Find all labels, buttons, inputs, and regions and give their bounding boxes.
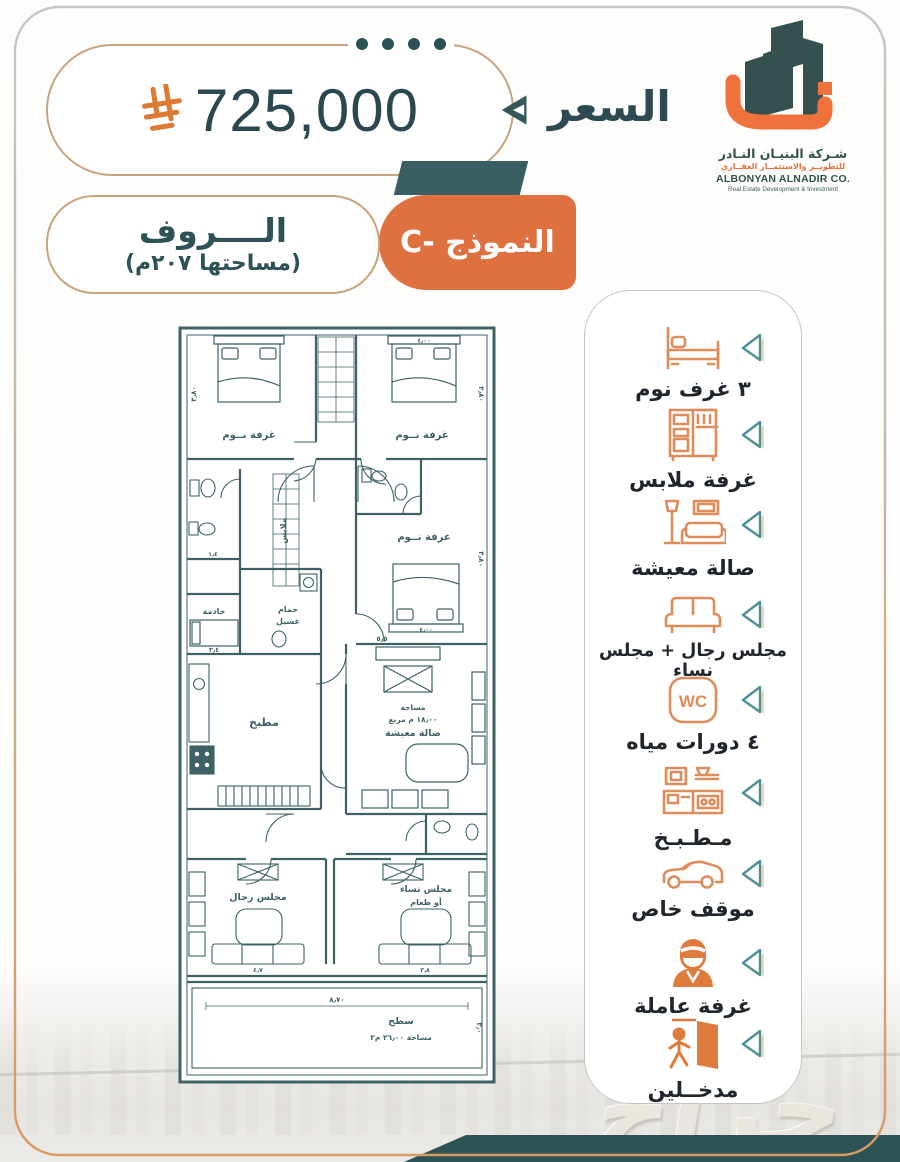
svg-text:٣٫٨٠: ٣٫٨٠ [477,551,485,566]
feature-label: مدخــلين [585,1078,801,1102]
maid-icon [665,937,721,989]
company-logo: شـركة البنيـان النـادر للتطويــر والاستث… [693,20,873,210]
svg-text:مساحة ٢٦٫٠٠ م٢: مساحة ٢٦٫٠٠ م٢ [370,1033,432,1042]
flyer-page: حراج 725,000 السعر [0,0,900,1162]
svg-text:٤٫٧: ٤٫٧ [253,967,263,974]
svg-text:١٨٫٠٠ م مربع: ١٨٫٠٠ م مربع [388,715,437,724]
arrow-left-icon [735,509,769,541]
arrow-left-icon [735,332,769,364]
bottom-accent-bar [388,1135,900,1162]
living-room-icon [660,499,726,551]
floorplan-drawing: غرفة نــوم غرفة نــوم غرفة نــوم ملابس ح… [176,324,498,1086]
svg-text:صالة معيشة: صالة معيشة [385,728,441,739]
logo-company-name-en: ALBONYAN ALNADIR CO. [693,173,873,185]
feature-label: ٤ دورات مياه [585,730,801,754]
price-label: السعر [548,82,671,131]
wardrobe-icon [664,407,722,463]
svg-text:أو طعام: أو طعام [410,897,442,907]
svg-text:مطبخ: مطبخ [249,716,279,729]
svg-text:١٫٤: ١٫٤ [208,551,218,558]
feature-label: مـطـبـخ [585,826,801,850]
feature-item-entrances: مدخــلين [585,1015,801,1102]
saudi-riyal-symbol [141,84,185,136]
svg-text:٣٫٨٠: ٣٫٨٠ [190,386,198,401]
arrow-left-icon [735,1028,769,1060]
arrow-left-icon [735,599,769,631]
svg-text:سطح: سطح [388,1016,413,1027]
arrow-left-icon [735,419,769,451]
feature-label: غرفة ملابس [585,468,801,492]
car-icon [660,856,726,892]
decorative-dots [348,38,454,50]
unit-area-note: (مساحتها ٢٠٧م) [125,251,301,276]
svg-text:حمام: حمام [278,605,298,614]
svg-text:غسيل: غسيل [276,617,300,626]
arrow-left-icon [735,947,769,979]
price-arrow-icon [496,92,530,128]
building-logo-icon [719,20,847,140]
svg-text:خادمة: خادمة [203,607,226,616]
logo-tagline-ar: للتطويــر والاستثمــار العقــاري [693,162,873,171]
arrow-left-icon [735,684,769,716]
wc-icon-text: WC [679,692,707,711]
feature-item-bedrooms: ٣ غرف نوم [585,324,801,401]
feature-item-living-hall: صالة معيشة [585,499,801,580]
price-pill: 725,000 [46,44,514,176]
svg-text:٣٫٨: ٣٫٨ [420,967,430,974]
svg-text:٨٫٧٠: ٨٫٧٠ [329,996,344,1004]
svg-text:غرفة نــوم: غرفة نــوم [222,430,275,441]
svg-text:مساحة: مساحة [400,703,425,712]
feature-label: صالة معيشة [585,556,801,580]
feature-item-kitchen: مـطـبـخ [585,765,801,850]
svg-text:٣٫٨٠: ٣٫٨٠ [477,386,485,401]
feature-label: ٣ غرف نوم [585,377,801,401]
feature-item-bathrooms: WC ٤ دورات مياه [585,675,801,754]
feature-label: موقف خاص [585,897,801,921]
bed-icon [662,324,724,372]
svg-text:٣٫٠: ٣٫٠ [475,1022,483,1033]
model-name: النموذج -C [400,225,555,260]
unit-name: الــــروف [139,213,287,249]
logo-tagline-en: Real Estate Development & Investment [693,186,873,193]
svg-text:مجلس نساء: مجلس نساء [400,885,452,895]
svg-text:٥٫٥: ٥٫٥ [376,635,387,643]
svg-text:٤٫٠٠: ٤٫٠٠ [419,627,432,634]
feature-item-majlis: مجلس رجال + مجلس نساء [585,594,801,681]
kitchen-icon [662,765,724,821]
wc-icon: WC [667,675,719,725]
feature-item-dressing-room: غرفة ملابس [585,407,801,492]
svg-text:مجلس رجال: مجلس رجال [229,892,287,903]
teal-parallelogram [394,161,528,195]
svg-text:٣٫٤: ٣٫٤ [209,646,219,654]
price-value: 725,000 [195,76,419,145]
svg-text:٤٫٠٠: ٤٫٠٠ [417,338,430,345]
door-entrance-icon [664,1015,722,1073]
arrow-left-icon [735,777,769,809]
unit-name-pill: الــــروف (مساحتها ٢٠٧م) [46,195,380,294]
feature-item-maid-room: غرفة عاملة [585,937,801,1018]
svg-text:ملابس: ملابس [279,518,289,543]
logo-company-name-ar: شـركة البنيـان النـادر [693,146,873,161]
svg-text:غرفة نــوم: غرفة نــوم [395,430,448,441]
arrow-left-icon [735,858,769,890]
model-banner: النموذج -C [379,195,576,290]
svg-text:غرفة نــوم: غرفة نــوم [397,532,450,543]
feature-item-parking: موقف خاص [585,856,801,921]
sofa-icon [660,594,726,636]
features-sidebar: ٣ غرف نوم غرفة ملابس [584,290,802,1104]
